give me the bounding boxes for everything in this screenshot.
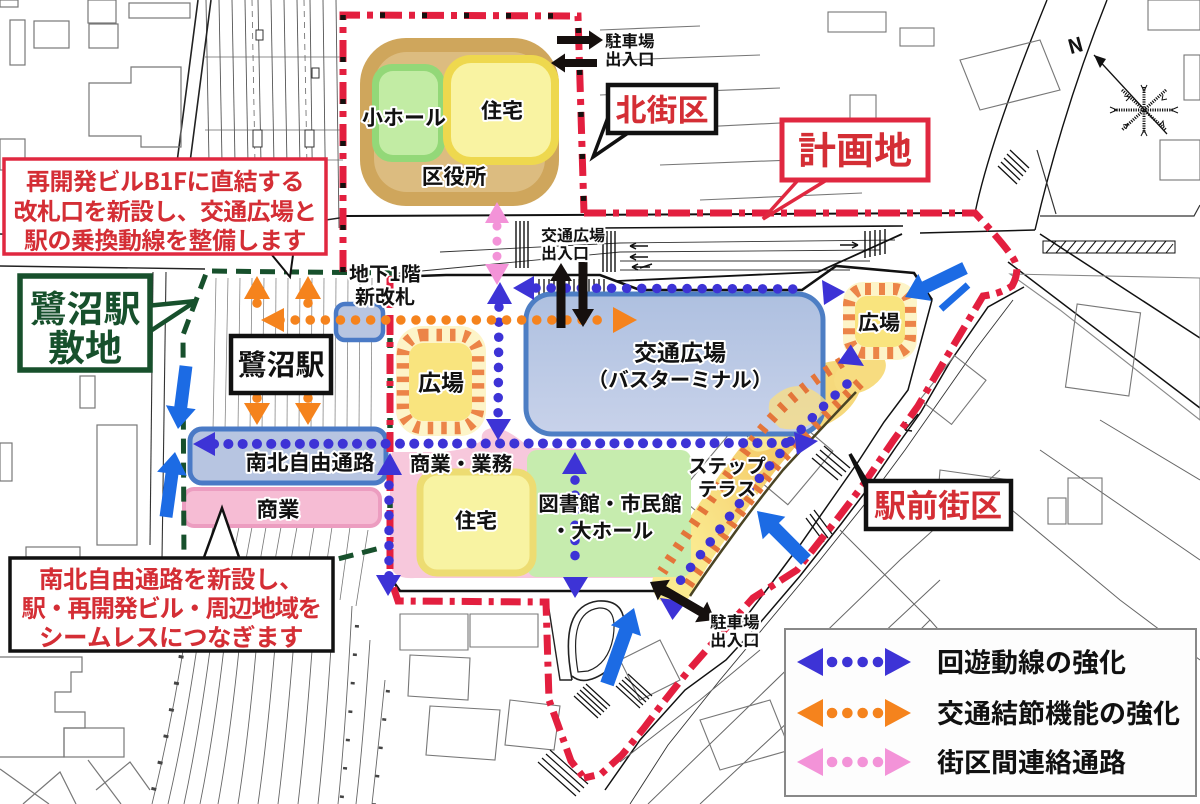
svg-text:交通結節機能の強化: 交通結節機能の強化 <box>937 692 1180 731</box>
svg-text:住宅: 住宅 <box>481 95 523 125</box>
svg-text:出入口: 出入口 <box>605 46 655 70</box>
svg-text:・大ホール: ・大ホール <box>551 514 654 544</box>
svg-text:鷺沼駅: 鷺沼駅 <box>237 342 324 384</box>
svg-text:小ホール: 小ホール <box>362 102 446 132</box>
svg-text:出入口: 出入口 <box>541 240 589 264</box>
svg-text:駅前街区: 駅前街区 <box>874 481 1002 527</box>
svg-text:敷地: 敷地 <box>48 318 122 372</box>
svg-text:商業・業務: 商業・業務 <box>410 447 513 477</box>
svg-text:シームレスにつなぎます: シームレスにつなぎます <box>39 619 303 654</box>
svg-text:新改札: 新改札 <box>355 281 415 310</box>
svg-text:駅の乗換動線を整備します: 駅の乗換動線を整備します <box>24 221 306 256</box>
svg-text:広場: 広場 <box>418 364 464 398</box>
svg-text:区役所: 区役所 <box>422 160 487 191</box>
svg-text:（バスターミナル）: （バスターミナル） <box>588 363 773 393</box>
svg-text:図書館・市民館: 図書館・市民館 <box>538 487 682 517</box>
svg-text:南北自由通路: 南北自由通路 <box>245 446 375 477</box>
svg-text:住宅: 住宅 <box>455 505 497 535</box>
svg-text:広場: 広場 <box>858 307 900 337</box>
svg-text:北街区: 北街区 <box>616 85 709 130</box>
svg-text:テラス: テラス <box>698 473 757 502</box>
svg-text:回遊動線の強化: 回遊動線の強化 <box>937 641 1126 680</box>
svg-text:計画地: 計画地 <box>798 120 912 175</box>
svg-text:街区間連絡通路: 街区間連絡通路 <box>937 741 1126 780</box>
svg-text:出入口: 出入口 <box>710 627 760 651</box>
svg-text:商業: 商業 <box>256 493 299 524</box>
